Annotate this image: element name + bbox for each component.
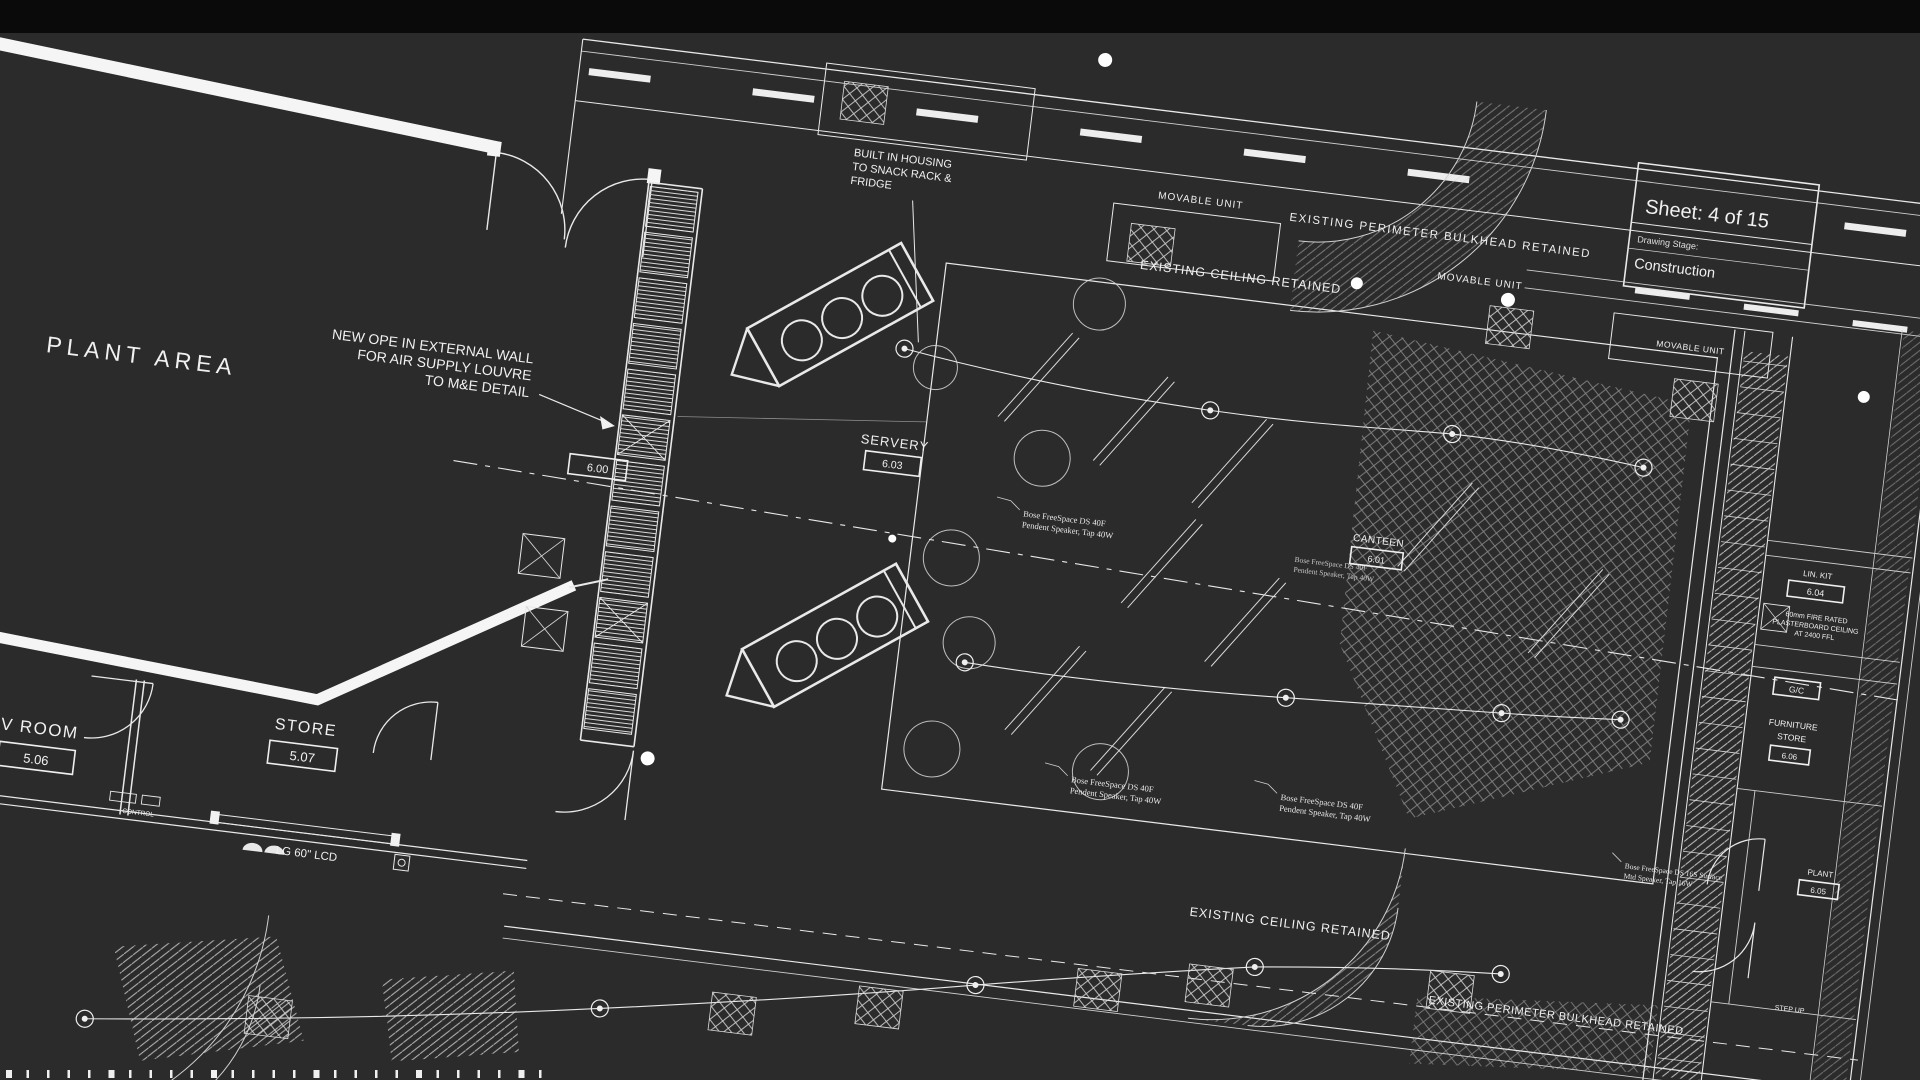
scale-tick [355, 1070, 358, 1078]
ceiling-grille [855, 986, 903, 1029]
room-number-canteen: 6.01 [1367, 554, 1386, 566]
counter-unit [612, 460, 665, 506]
room-number-servery: 6.03 [881, 458, 903, 472]
scale-tick [129, 1070, 132, 1078]
ceiling-grille [840, 81, 888, 124]
room-number-store: 5.07 [289, 748, 316, 766]
scale-tick [396, 1070, 399, 1078]
scale-tick [6, 1070, 12, 1078]
scale-tick [88, 1070, 91, 1078]
ceiling-grille [1185, 964, 1233, 1007]
scale-tick [170, 1070, 173, 1078]
scale-tick [47, 1070, 50, 1078]
counter-unit [629, 323, 682, 369]
room-number-v-room: 5.06 [22, 750, 49, 768]
scale-tick [437, 1070, 440, 1078]
counter-unit [601, 552, 654, 598]
scale-tick [191, 1070, 194, 1078]
scale-tick [27, 1070, 30, 1078]
scale-tick [457, 1070, 460, 1078]
scale-tick [293, 1070, 296, 1078]
scale-tick [498, 1070, 501, 1078]
scale-tick [150, 1070, 153, 1078]
ceiling-grille [1485, 306, 1533, 349]
scale-tick [334, 1070, 337, 1078]
scale-tick [314, 1070, 320, 1078]
counter-unit [645, 186, 698, 232]
scale-tick [211, 1070, 217, 1078]
floor-plan-svg: Sheet: 4 of 15 Drawing Stage: Constructi… [0, 0, 1920, 1080]
scale-tick [252, 1070, 255, 1078]
scale-tick [519, 1070, 525, 1078]
scale-tick [375, 1070, 378, 1078]
counter-unit [623, 369, 676, 415]
gc-label: G/C [1788, 684, 1804, 696]
ceiling-grille [244, 996, 292, 1039]
room-number-lin-kit: 6.04 [1806, 586, 1825, 598]
scale-tick [273, 1070, 276, 1078]
counter-unit [606, 506, 659, 552]
ceiling-grille [708, 992, 756, 1035]
scale-tick [416, 1070, 422, 1078]
scale-tick [68, 1070, 71, 1078]
scale-tick [478, 1070, 481, 1078]
scale-tick [109, 1070, 115, 1078]
scale-tick [539, 1070, 542, 1078]
door-jamb [487, 140, 502, 156]
counter-unit [640, 232, 693, 278]
ceiling-grille [1670, 379, 1718, 422]
scale-tick [232, 1070, 235, 1078]
counter-unit [584, 689, 637, 735]
lcd-bracket [390, 833, 401, 847]
counter-unit [589, 643, 642, 689]
lcd-bracket [209, 811, 220, 825]
top-black-band [0, 0, 1920, 33]
ceiling-grille [1074, 968, 1122, 1011]
counter-unit [634, 278, 687, 324]
